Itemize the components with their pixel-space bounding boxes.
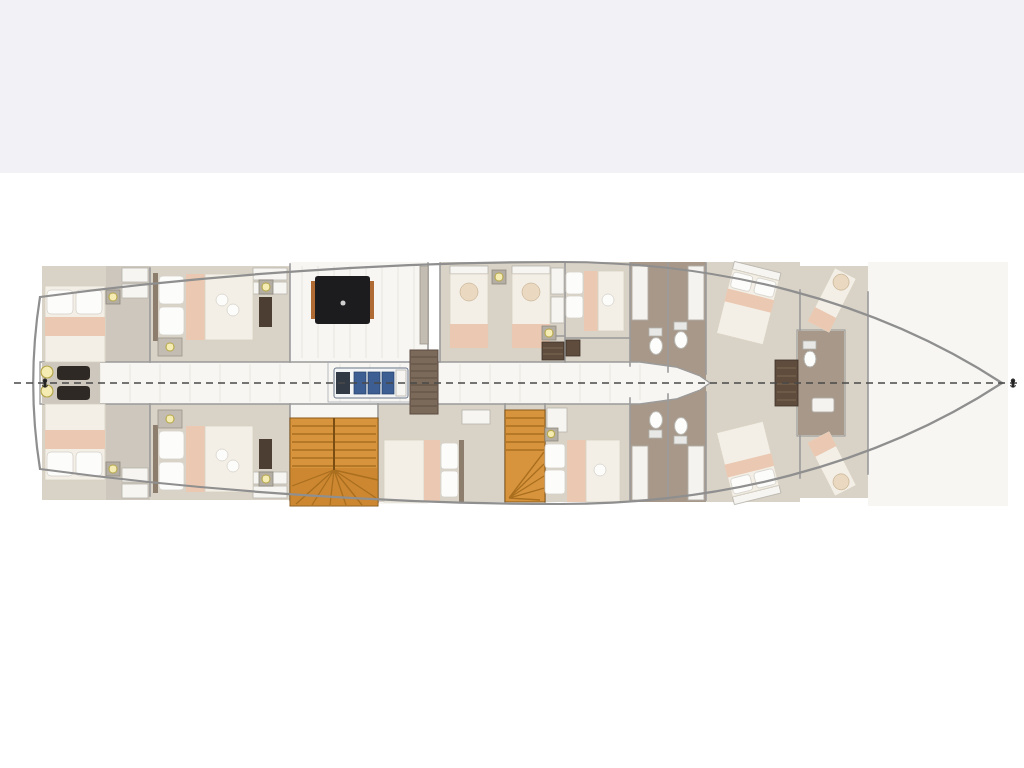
wardrobe-cabinet — [551, 268, 564, 294]
wall-light-icon — [106, 290, 120, 304]
dark-wood-cabinet — [566, 340, 580, 356]
bed-headboard — [450, 266, 488, 274]
wardrobe-cabinet — [551, 297, 564, 323]
bed-headboard — [459, 440, 464, 502]
bed-pillow — [159, 307, 184, 335]
bed-pillow — [545, 444, 565, 468]
bed-pillow — [566, 272, 583, 294]
throw-pillow — [227, 304, 239, 316]
bed-blanket — [45, 430, 105, 449]
bow-deck-floor — [868, 262, 1008, 506]
bed-headboard — [512, 266, 550, 274]
shower-tray — [688, 446, 704, 500]
bedside-light-icon — [166, 415, 174, 423]
tv-cabinet — [259, 297, 272, 327]
stern-winch — [57, 386, 90, 400]
stern-winch — [57, 366, 90, 380]
bed-blanket — [567, 440, 586, 502]
bed-blanket — [45, 317, 105, 336]
bed-pillow — [441, 471, 458, 497]
round-pillow — [460, 283, 478, 301]
throw-pillow — [594, 464, 606, 476]
tv-cabinet — [259, 439, 272, 469]
bed-duvet — [384, 440, 424, 502]
bed-pillow — [441, 443, 458, 469]
companionway-steps — [410, 350, 438, 414]
toilet-icon — [803, 341, 816, 367]
bedside-light-icon — [166, 343, 174, 351]
bed-blanket — [584, 271, 598, 331]
wall-light-icon — [542, 326, 556, 340]
black-dining-table — [315, 276, 370, 324]
throw-pillow — [216, 294, 228, 306]
toilet-icon — [674, 418, 688, 445]
bed-pillow — [566, 296, 583, 318]
yacht-floor-plan — [0, 0, 1024, 768]
wall-light-icon — [259, 280, 273, 294]
table-centerpiece — [341, 301, 346, 306]
bed-blanket — [186, 274, 205, 340]
bed-blanket — [186, 426, 205, 492]
wardrobe-cabinet — [122, 268, 148, 282]
bed-pillow — [545, 470, 565, 494]
wardrobe-cabinet — [122, 484, 148, 498]
throw-pillow — [602, 294, 614, 306]
bed-pillow — [76, 452, 102, 476]
wall-light-icon — [259, 472, 273, 486]
wall-light-icon — [545, 428, 558, 441]
salon-dining-table — [311, 276, 374, 324]
shower-tray — [632, 266, 648, 320]
toilet-icon — [649, 328, 663, 355]
throw-pillow — [227, 460, 239, 472]
stern-deck-light-icon — [41, 366, 53, 378]
toilet-icon — [674, 322, 688, 349]
spiral-staircase — [505, 410, 545, 502]
dark-wood-dresser — [542, 342, 564, 360]
main-staircase — [290, 418, 378, 506]
dresser — [462, 410, 490, 424]
wall-light-icon — [492, 270, 506, 284]
sink-counter — [812, 398, 834, 412]
bed-pillow — [159, 431, 184, 459]
shower-tray — [632, 446, 648, 500]
throw-pillow — [216, 449, 228, 461]
round-pillow — [522, 283, 540, 301]
bed-duvet — [205, 426, 253, 492]
bed-blanket — [424, 440, 440, 502]
shower-tray — [688, 266, 704, 320]
bed-pillow — [76, 290, 102, 314]
salon-sideboard — [420, 266, 428, 344]
bed-blanket — [450, 324, 488, 348]
wall-light-icon — [106, 462, 120, 476]
toilet-icon — [649, 412, 663, 439]
screenshot-stage — [0, 0, 1024, 768]
